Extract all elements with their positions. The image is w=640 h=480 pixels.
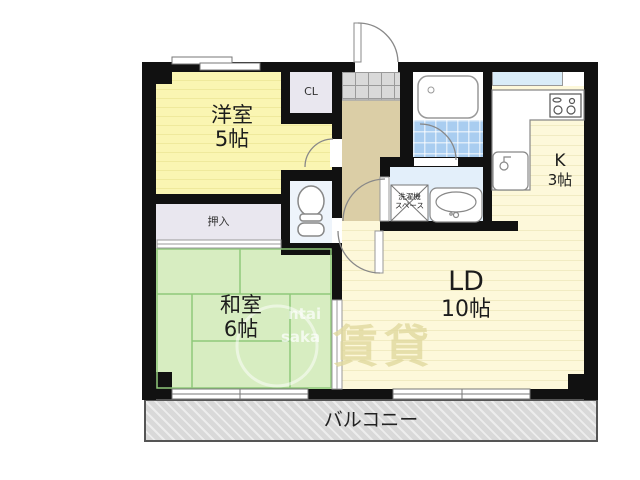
wall: [332, 72, 342, 139]
hallway-floor-lower: [342, 157, 380, 221]
floor-plan: 洋室 5帖 和室 6帖 LD 10帖 K 3帖 CL 押入 洗濯機 スペース バ…: [0, 0, 640, 480]
wall: [142, 62, 156, 400]
toilet-room-floor: [290, 181, 332, 243]
room-japanese-size: 6帖: [171, 317, 311, 341]
laundry-space-label: 洗濯機 スペース: [391, 193, 428, 210]
bathroom-doorway: [414, 158, 458, 166]
room-ld-name: LD: [392, 266, 540, 297]
wall: [156, 194, 281, 204]
wall: [568, 374, 598, 399]
entrance-doorway: [355, 62, 398, 72]
western-room-doorway: [330, 139, 342, 167]
room-japanese-label: 和室 6帖: [171, 293, 311, 341]
toilet-doorway: [332, 218, 342, 243]
room-japanese-name: 和室: [171, 293, 311, 317]
room-kitchen-label: K 3帖: [520, 152, 600, 189]
balcony-label: バルコニー: [144, 410, 598, 432]
entrance-door-icon: [354, 23, 398, 62]
wall: [156, 72, 172, 84]
bathroom-tile-floor: [413, 120, 483, 157]
oshiire-text: 押入: [156, 216, 281, 229]
wall: [584, 62, 598, 400]
wall: [483, 62, 492, 221]
wall: [400, 62, 413, 167]
wall: [142, 389, 598, 399]
wall: [142, 372, 172, 399]
wall: [380, 221, 518, 231]
oshiire-label: 押入: [156, 216, 281, 229]
wall: [281, 170, 342, 181]
room-kitchen-name: K: [520, 152, 600, 172]
bathtub-icon: [418, 76, 478, 118]
room-ld-size: 10帖: [392, 297, 540, 322]
room-western-size: 5帖: [162, 127, 302, 151]
laundry-space-line2: スペース: [391, 202, 428, 211]
room-western-label: 洋室 5帖: [162, 103, 302, 151]
wall: [380, 160, 390, 177]
hallway-floor-upper: [342, 100, 400, 157]
genkan-tile-floor: [342, 72, 400, 100]
room-western-name: 洋室: [162, 103, 302, 127]
balcony-text: バルコニー: [144, 410, 598, 432]
room-ld-label: LD 10帖: [392, 266, 540, 322]
room-kitchen-size: 3帖: [520, 172, 600, 189]
closet-cl-text: CL: [290, 86, 332, 99]
closet-cl-label: CL: [290, 86, 332, 99]
wall: [332, 243, 342, 300]
